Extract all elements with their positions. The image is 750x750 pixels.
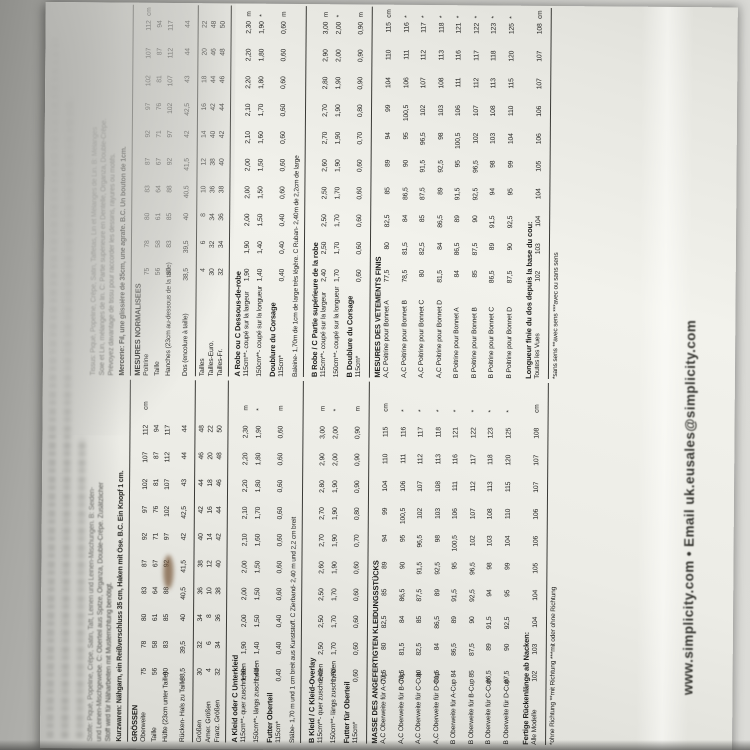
row-label: B Poitrine pour Bonnet D: [504, 307, 514, 379]
cell-value: 44: [215, 506, 224, 530]
cell-value: 2,70: [321, 132, 330, 156]
cell-value: 2,30: [245, 21, 254, 45]
cell-value: 96,5: [468, 562, 477, 586]
cell-value: 90: [471, 215, 480, 239]
cell-value: 2,70: [321, 104, 330, 128]
unit-label: *: [332, 409, 341, 411]
cell-value: 42,5: [180, 506, 189, 530]
cell-value: 80: [383, 242, 392, 266]
cell-value: 1,90: [330, 534, 339, 558]
unit-label: *: [402, 15, 411, 17]
cell-value: 89: [436, 188, 445, 212]
cell-value: 2,10: [244, 104, 253, 128]
cell-value: 80: [161, 668, 170, 692]
cell-value: 0,60: [352, 588, 361, 612]
cell-value: 85: [162, 614, 171, 638]
cell-value: 38: [214, 587, 223, 611]
cell-value: 92,5: [506, 216, 515, 240]
cell-value: 0,40: [275, 615, 284, 639]
cell-value: 1,90: [254, 426, 263, 450]
cell-value: 99: [384, 105, 393, 129]
unit-label: *: [335, 15, 344, 17]
cell-value: 108: [532, 428, 541, 452]
instruction-sheet-paper: Stoffe: Piqué, Popeline, Crêpe, Satin, T…: [40, 2, 738, 750]
cell-value: 1,90: [331, 480, 340, 504]
cell-value: 107: [468, 508, 477, 532]
cell-value: 2,00: [240, 588, 249, 612]
cell-value: 92,5: [436, 160, 445, 184]
cell-value: 102: [419, 105, 428, 129]
cell-value: 87: [140, 560, 149, 584]
cell-value: 82,5: [383, 215, 392, 239]
cell-value: 87,5: [415, 589, 424, 613]
cell-value: 100,5: [450, 535, 459, 559]
cell-value: 0,40: [275, 642, 284, 666]
cell-value: 1,70: [330, 642, 339, 666]
cell-value: 103: [485, 535, 494, 559]
cell-value: 84: [401, 215, 410, 239]
cell-value: 2,00: [243, 214, 252, 238]
cell-value: 0,60: [276, 480, 285, 504]
row-label: Taille: [150, 727, 159, 742]
cell-value: 38: [196, 560, 205, 584]
cell-value: 0,60: [279, 76, 288, 100]
cell-value: 106: [535, 133, 544, 157]
cell-value: 10: [205, 587, 214, 611]
cell-value: 39,5: [179, 641, 188, 665]
unit-label: *: [399, 409, 408, 411]
cell-value: 2,90: [321, 49, 330, 73]
cell-value: 100,5: [454, 133, 463, 157]
cell-value: 94: [384, 132, 393, 156]
table-row: 115cm*0,600,600,600,600,600,700,800,900,…: [354, 6, 369, 377]
cell-value: 36: [214, 614, 223, 638]
divider-rule: [300, 381, 304, 743]
cell-value: 89: [433, 589, 442, 613]
photo-of-pattern-sheet: Stoffe: Piqué, Popeline, Crêpe, Satin, T…: [0, 0, 750, 750]
cell-value: 44: [180, 452, 189, 476]
cell-value: 2,70: [317, 534, 326, 558]
cell-value: 107: [471, 105, 480, 129]
cell-value: 83: [162, 641, 171, 665]
cell-value: 84: [432, 643, 441, 667]
cell-value: 1,40: [252, 669, 261, 693]
cell-value: 61: [151, 614, 160, 638]
cell-value: 100,5: [398, 508, 407, 532]
cell-value: 123: [486, 427, 495, 451]
cell-value: 99: [506, 161, 515, 185]
cell-value: 1,80: [254, 453, 263, 477]
cell-value: 0,90: [356, 77, 365, 101]
unit-label: *: [258, 14, 267, 16]
unit-label: m: [357, 12, 366, 17]
cell-value: 116: [399, 427, 408, 451]
cell-value: 1,50: [256, 214, 265, 238]
table-row: 115cm*0,400,400,400,600,600,600,600,600,…: [274, 381, 289, 743]
row-label: 115cm*: [351, 722, 360, 744]
cell-value: 99: [503, 563, 512, 587]
cell-value: 89: [380, 562, 389, 586]
cell-value: 90: [401, 160, 410, 184]
cell-value: 103: [433, 508, 442, 532]
nap-footnote: *sans sens **avec sens ***avec ou sans s…: [551, 8, 563, 379]
cell-value: 2,80: [318, 480, 327, 504]
row-label: 115cm*: [277, 355, 286, 377]
cell-value: 32: [196, 641, 205, 665]
row-label: Toutes les Vues: [533, 333, 542, 379]
cell-value: 107: [532, 482, 541, 506]
cell-value: 81: [152, 479, 161, 503]
cell-value: 80: [418, 270, 427, 294]
cell-value: 115: [381, 427, 390, 451]
cell-value: 118: [486, 454, 495, 478]
cell-value: 2,00: [243, 159, 252, 183]
cell-value: 1,70: [330, 588, 339, 612]
cell-value: 36: [196, 587, 205, 611]
cell-value: 0,90: [353, 426, 362, 450]
cell-value: 84: [449, 670, 458, 694]
cell-value: 1,70: [257, 104, 266, 128]
cell-value: 34: [214, 641, 223, 665]
cell-value: 86,5: [484, 670, 493, 694]
cell-value: 1,50: [253, 561, 262, 585]
row-label: A,C Poitrine pour Bonnet D: [434, 300, 444, 378]
unit-label: m: [322, 12, 331, 17]
row-label: B Poitrine pour Bonnet C: [487, 307, 497, 379]
cell-value: 91,5: [485, 616, 494, 640]
cell-value: 58: [151, 641, 160, 665]
cell-value: 91,5: [415, 562, 424, 586]
unit-label: cm: [536, 10, 545, 18]
cell-value: 107: [532, 455, 541, 479]
unit-label: *: [490, 16, 499, 18]
divider-rule: [366, 382, 370, 744]
cell-value: 0,70: [352, 534, 361, 558]
cell-value: 115: [503, 482, 512, 506]
cell-value: 89: [383, 160, 392, 184]
cell-value: 0,60: [280, 21, 289, 45]
cell-value: 78: [140, 641, 149, 665]
cell-value: 104: [503, 536, 512, 560]
table-row: Alle Modelle1021031041041051061061071071…: [530, 383, 545, 745]
cell-value: 92,5: [471, 188, 480, 212]
unit-label: m: [319, 406, 328, 411]
cell-value: 122: [472, 23, 481, 47]
cell-value: 95: [506, 188, 515, 212]
unit-label: cm: [533, 404, 542, 412]
row-label: Amer. Größen: [204, 701, 213, 742]
cell-value: 117: [416, 427, 425, 451]
cell-value: 117: [472, 50, 481, 74]
cell-value: 104: [506, 133, 515, 157]
cell-value: 121: [451, 427, 460, 451]
table-row: B Oberweite für D-Cup87,59092,5959910411…: [502, 383, 522, 745]
cell-value: 0,40: [274, 669, 283, 693]
cell-value: 0,60: [352, 561, 361, 585]
cell-value: 80: [140, 614, 149, 638]
boning-ribbon-note: Baleine- 1,70m de 1cm de large très légè…: [291, 6, 303, 377]
cell-value: 95: [453, 160, 462, 184]
cell-value: 110: [506, 106, 515, 130]
cell-value: 106: [451, 508, 460, 532]
row-label: 115cm**- coupé sur la largeur: [242, 292, 252, 377]
cell-value: 110: [384, 50, 393, 74]
cell-value: 91,5: [450, 589, 459, 613]
cell-value: 85: [470, 270, 479, 294]
cell-value: 1,90: [239, 669, 248, 693]
cell-value: 2,50: [317, 588, 326, 612]
cell-value: 110: [381, 454, 390, 478]
cell-value: 113: [434, 454, 443, 478]
cell-value: 2,20: [244, 76, 253, 100]
cell-value: 87,5: [467, 643, 476, 667]
cell-value: 105: [534, 161, 543, 185]
cell-value: 83: [140, 587, 149, 611]
cell-value: 107: [535, 78, 544, 102]
table-row: B Poitrine pour Bonnet D87,59092,5959910…: [504, 8, 524, 379]
cell-value: 0,40: [278, 269, 287, 293]
cell-value: 86,5: [432, 616, 441, 640]
cell-value: 2,20: [241, 453, 250, 477]
cell-value: 0,60: [278, 186, 287, 210]
cell-value: 0,90: [357, 22, 366, 46]
cell-value: 1,70: [333, 269, 342, 293]
cell-value: 0,80: [356, 104, 365, 128]
cell-value: 81,5: [435, 270, 444, 294]
cell-value: 20: [206, 452, 215, 476]
cell-value: 92,5: [502, 617, 511, 641]
cell-value: 40: [197, 533, 206, 557]
unit-label: *: [504, 410, 513, 412]
unit-label: *: [255, 408, 264, 410]
cell-value: 105: [531, 563, 540, 587]
cell-value: 0,60: [355, 242, 364, 266]
cell-value: 0,90: [353, 480, 362, 504]
cell-value: 104: [531, 617, 540, 641]
cell-value: 0,60: [355, 269, 364, 293]
cell-value: 90: [398, 562, 407, 586]
paper-fold-highlight: [636, 7, 694, 750]
cell-value: 0,60: [351, 669, 360, 693]
cell-value: 1,90: [331, 507, 340, 531]
cell-value: 108: [433, 481, 442, 505]
cell-value: 1,40: [256, 241, 265, 265]
cell-value: 102: [471, 133, 480, 157]
cell-value: 46: [197, 452, 206, 476]
row-label: Oberweite: [139, 712, 148, 742]
table-row: Toutes les Vues1021031041041051061061071…: [533, 8, 548, 379]
cell-value: 113: [437, 50, 446, 74]
cell-value: 82,5: [415, 643, 424, 667]
divider-rule: [369, 7, 373, 378]
cell-value: 98: [488, 161, 497, 185]
cell-value: 87,5: [502, 671, 511, 695]
cell-value: 112: [472, 78, 481, 102]
unit-label: *: [452, 410, 461, 412]
cell-value: 1,70: [329, 669, 338, 693]
unit-label: *: [434, 410, 443, 412]
cell-value: 99: [381, 508, 390, 532]
cell-value: 80: [414, 670, 423, 694]
cell-value: 86,5: [436, 215, 445, 239]
unit-label: *: [417, 410, 426, 412]
cell-value: 112: [163, 452, 172, 476]
cell-value: 2,60: [317, 561, 326, 585]
cell-value: 40: [214, 560, 223, 584]
cell-value: 125: [507, 23, 516, 47]
cell-value: 118: [489, 51, 498, 75]
cell-value: 1,60: [257, 131, 266, 155]
cell-value: 106: [454, 105, 463, 129]
row-label: A,C Poitrine pour Bonnet C: [417, 300, 427, 378]
cell-value: 0,70: [356, 132, 365, 156]
cell-value: 95: [401, 132, 410, 156]
cell-value: 96,5: [419, 132, 428, 156]
cell-value: 12: [205, 560, 214, 584]
cell-value: 104: [534, 188, 543, 212]
cell-value: 116: [454, 50, 463, 74]
cell-value: 42: [215, 533, 224, 557]
cell-value: 104: [384, 77, 393, 101]
cell-value: 2,50: [320, 242, 329, 266]
cell-value: 113: [489, 78, 498, 102]
cell-value: 3,00: [322, 22, 331, 46]
row-label: B Poitrine pour Bonnet B: [469, 307, 479, 378]
cell-value: 2,50: [317, 642, 326, 666]
cell-value: 102: [141, 479, 150, 503]
cell-value: 108: [437, 78, 446, 102]
unit-label: cm: [382, 403, 391, 411]
cell-value: 1,50: [253, 588, 262, 612]
cell-value: 77,5: [379, 670, 388, 694]
divider-rule: [303, 6, 307, 377]
cell-value: 1,80: [257, 76, 266, 100]
cell-value: 3,00: [318, 426, 327, 450]
unit-label: *: [469, 410, 478, 412]
cell-value: 104: [534, 216, 543, 240]
row-label: Alle Modelle: [530, 710, 539, 745]
cell-value: 6: [205, 641, 214, 665]
cell-value: 88: [162, 587, 171, 611]
cell-value: 2,00: [331, 426, 340, 450]
cell-value: 1,70: [254, 507, 263, 531]
cell-value: 2,00: [240, 561, 249, 585]
cell-value: 107: [416, 481, 425, 505]
cell-value: 1,90: [240, 642, 249, 666]
cell-value: 2,70: [318, 507, 327, 531]
cell-value: 118: [437, 23, 446, 47]
cell-value: 117: [469, 454, 478, 478]
cell-value: 84: [435, 243, 444, 267]
cell-value: 2,00: [243, 186, 252, 210]
cell-value: 2,10: [244, 131, 253, 155]
cell-value: 116: [402, 22, 411, 46]
cell-value: 106: [532, 509, 541, 533]
cell-value: 1,70: [333, 214, 342, 238]
cell-value: 85: [415, 616, 424, 640]
cell-value: 112: [468, 481, 477, 505]
cell-value: 96,5: [415, 535, 424, 559]
cell-value: 46: [215, 479, 224, 503]
cell-value: 44: [197, 479, 206, 503]
cell-value: 92,5: [433, 562, 442, 586]
row-label: B Poitrine pour Bonnet A: [452, 307, 462, 378]
cell-value: 85: [418, 215, 427, 239]
cell-value: 102: [530, 671, 539, 695]
cell-value: 0,60: [355, 187, 364, 211]
cell-value: 122: [469, 427, 478, 451]
cell-value: 0,60: [276, 453, 285, 477]
cell-value: 111: [454, 78, 463, 102]
cell-value: 103: [436, 105, 445, 129]
row-label: Franz. Größen: [213, 700, 222, 742]
table-row: 115cm*0,600,600,600,600,600,700,800,900,…: [351, 381, 366, 743]
cell-value: 102: [416, 508, 425, 532]
cell-value: 117: [420, 22, 429, 46]
cell-value: 123: [490, 23, 499, 47]
cell-value: 1,40: [253, 642, 262, 666]
cell-value: 2,40: [316, 669, 325, 693]
cell-value: 103: [489, 133, 498, 157]
unit-label: *: [507, 16, 516, 18]
cell-value: 2,00: [240, 615, 249, 639]
boning-ribbon-note: Stäbe- 1,70 m und 1 cm breit aus Kunstst…: [288, 381, 300, 743]
cell-value: 98: [433, 535, 442, 559]
cell-value: 1,50: [253, 615, 262, 639]
cell-value: 81,5: [397, 643, 406, 667]
cell-value: 92,5: [468, 589, 477, 613]
cell-value: 87,5: [418, 187, 427, 211]
cell-value: 1,40: [256, 269, 265, 293]
cell-value: 106: [402, 77, 411, 101]
cell-value: 89: [450, 616, 459, 640]
cell-value: 4: [204, 668, 213, 692]
cell-value: 90: [502, 644, 511, 668]
cell-value: 111: [399, 454, 408, 478]
cell-value: 1,90: [333, 159, 342, 183]
cell-value: 2,30: [241, 426, 250, 450]
cell-value: 115: [507, 78, 516, 102]
cell-value: 87,5: [505, 271, 514, 295]
cell-value: 40: [179, 614, 188, 638]
cell-value: 91,5: [488, 216, 497, 240]
cell-value: 90: [467, 616, 476, 640]
cell-value: 2,00: [334, 49, 343, 73]
cell-value: 1,90: [258, 21, 267, 45]
cell-value: 78,5: [397, 670, 406, 694]
cell-value: 64: [151, 587, 160, 611]
cell-value: 0,90: [356, 49, 365, 73]
cell-value: 42: [197, 506, 206, 530]
cell-value: 103: [534, 243, 543, 267]
cell-value: 118: [434, 427, 443, 451]
cell-value: 0,60: [355, 214, 364, 238]
cell-value: 82,5: [418, 242, 427, 266]
cell-value: 0,60: [275, 561, 284, 585]
cell-value: 2,40: [320, 269, 329, 293]
cell-value: 116: [451, 454, 460, 478]
cell-value: 104: [381, 481, 390, 505]
row-label: Größen: [195, 720, 204, 742]
cell-value: 92: [141, 533, 150, 557]
row-label: 150cm**- coupé sur la longueur: [255, 286, 265, 377]
cell-value: 2,10: [241, 507, 250, 531]
cell-value: 98: [485, 562, 494, 586]
cell-value: 108: [536, 23, 545, 47]
cell-value: 110: [503, 509, 512, 533]
row-label: A,C Poitrine pour Bonnet A: [382, 300, 392, 377]
cell-value: 2,00: [335, 22, 344, 46]
